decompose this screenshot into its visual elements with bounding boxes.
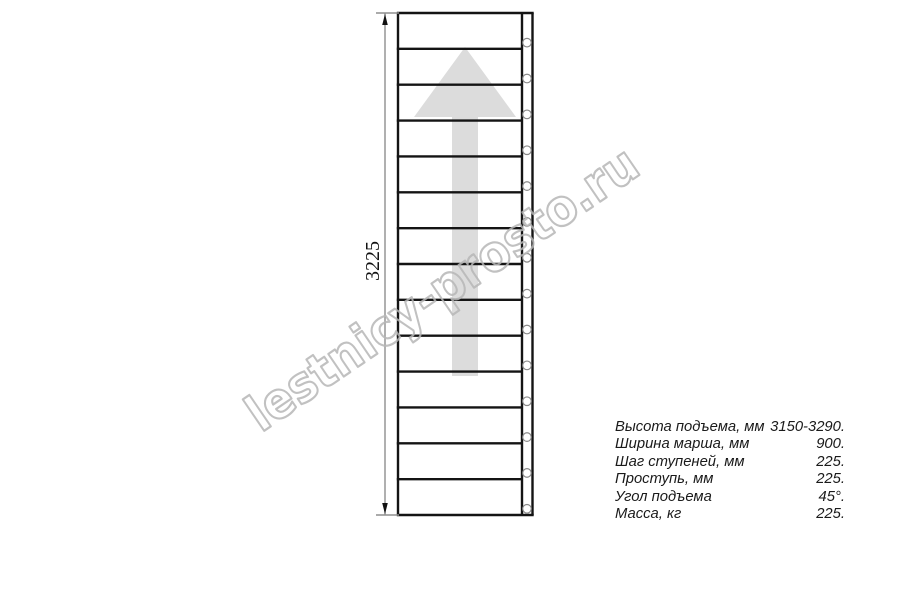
- spec-value: 225.: [816, 454, 845, 471]
- fastener-circle: [523, 110, 532, 119]
- spec-value: 225.: [816, 506, 845, 523]
- spec-label: Шаг ступеней, мм: [615, 454, 745, 471]
- spec-row: Высота подъема, мм 3150-3290.: [615, 419, 845, 436]
- watermark-text: lestnicy-prosto.ru: [235, 135, 649, 443]
- spec-label: Высота подъема, мм: [615, 419, 765, 436]
- spec-label: Угол подъема: [615, 489, 712, 506]
- technical-drawing-canvas: 3225 lestnicy-prosto.ru Высота подъема, …: [0, 0, 900, 600]
- spec-row: Проступь, мм 225.: [615, 471, 845, 488]
- dimension-arrowhead-top: [382, 14, 388, 25]
- spec-value: 45°.: [819, 489, 846, 506]
- spec-row: Шаг ступеней, мм 225.: [615, 454, 845, 471]
- spec-label: Масса, кг: [615, 506, 681, 523]
- specs-table: Высота подъема, мм 3150-3290. Ширина мар…: [615, 419, 845, 523]
- spec-row: Ширина марша, мм 900.: [615, 436, 845, 453]
- spec-label: Ширина марша, мм: [615, 436, 749, 453]
- fastener-circle: [523, 505, 532, 514]
- fastener-circle: [523, 289, 532, 298]
- spec-value: 900.: [816, 436, 845, 453]
- fastener-circle: [523, 397, 532, 406]
- spec-row: Масса, кг 225.: [615, 506, 845, 523]
- spec-value: 225.: [816, 471, 845, 488]
- fastener-circle: [523, 325, 532, 334]
- fastener-circle: [523, 469, 532, 478]
- spec-label: Проступь, мм: [615, 471, 713, 488]
- dimension-label: 3225: [362, 241, 384, 281]
- fastener-circle: [523, 38, 532, 47]
- fastener-circle: [523, 146, 532, 155]
- dimension-line-group: 3225: [362, 13, 399, 515]
- fastener-circles: [523, 38, 532, 513]
- spec-row: Угол подъема 45°.: [615, 489, 845, 506]
- fastener-circle: [523, 433, 532, 442]
- fastener-circle: [523, 74, 532, 83]
- dimension-arrowhead-bottom: [382, 503, 388, 514]
- fastener-circle: [523, 182, 532, 191]
- fastener-circle: [523, 361, 532, 370]
- spec-value: 3150-3290.: [770, 419, 845, 436]
